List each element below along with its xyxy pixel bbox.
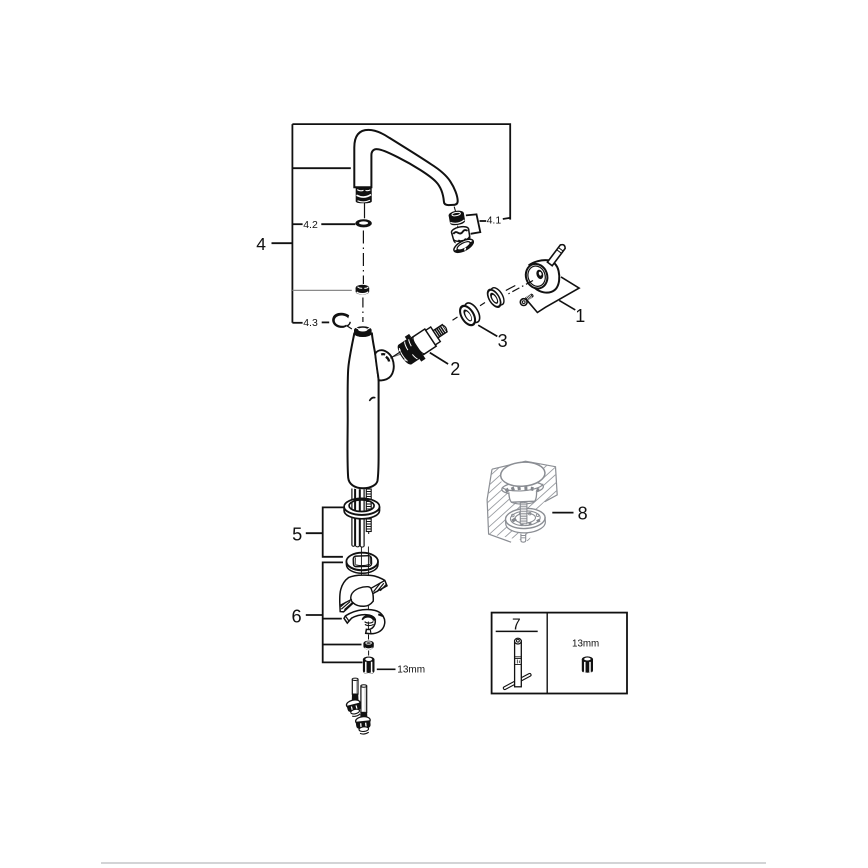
svg-text:2: 2 (450, 359, 460, 379)
svg-text:13mm: 13mm (572, 639, 599, 650)
svg-text:4: 4 (256, 234, 266, 254)
svg-text:4.1: 4.1 (487, 215, 502, 227)
svg-text:1: 1 (575, 306, 585, 326)
svg-text:5: 5 (292, 524, 302, 544)
svg-text:8: 8 (578, 503, 588, 523)
svg-text:4.2: 4.2 (303, 219, 318, 231)
svg-text:6: 6 (292, 606, 302, 626)
svg-text:3: 3 (498, 331, 508, 351)
svg-text:13mm: 13mm (397, 665, 425, 676)
svg-text:4.3: 4.3 (303, 317, 318, 329)
